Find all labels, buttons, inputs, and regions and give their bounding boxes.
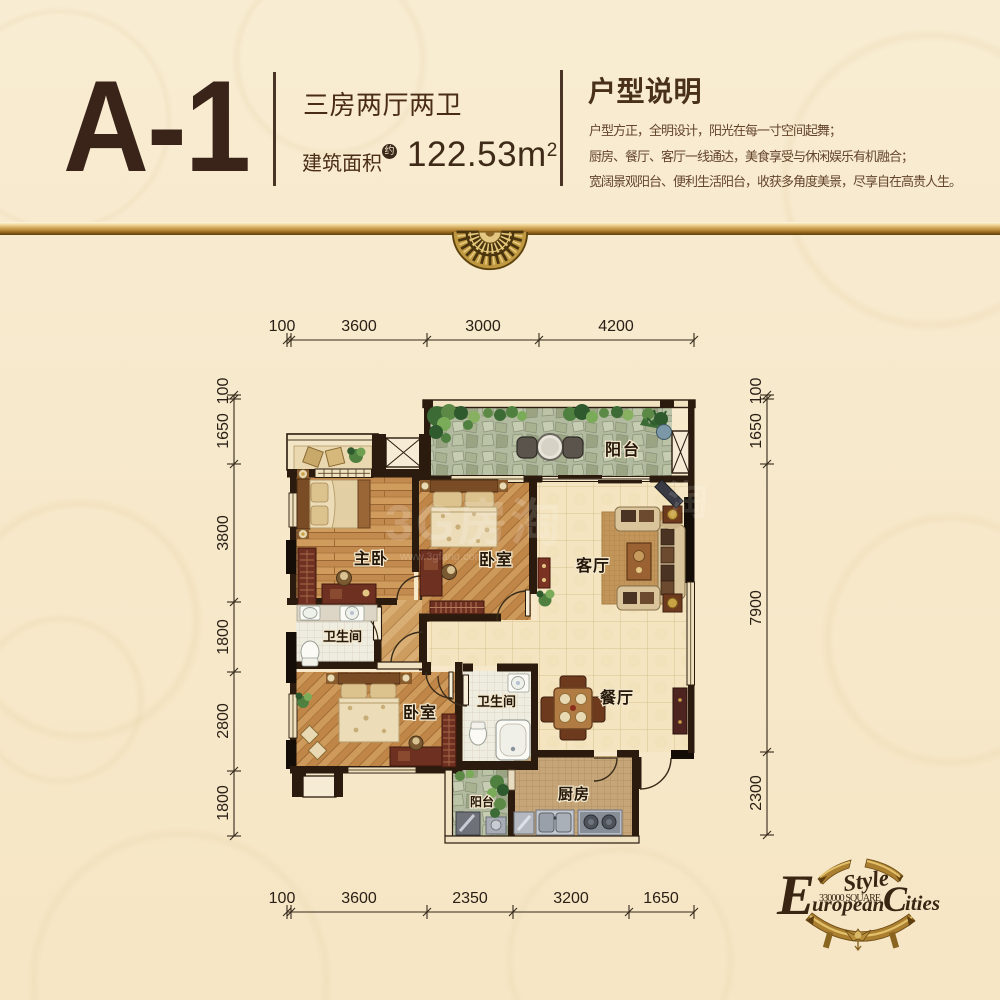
svg-text:卫生间: 卫生间 <box>323 629 362 644</box>
svg-text:4200: 4200 <box>598 318 634 335</box>
svg-text:3G房淘: 3G房淘 <box>385 495 564 551</box>
svg-text:3600: 3600 <box>341 890 377 907</box>
svg-text:100: 100 <box>748 378 765 405</box>
svg-text:100: 100 <box>215 378 232 405</box>
svg-text:卧室: 卧室 <box>479 550 513 569</box>
svg-text:阳台: 阳台 <box>605 440 641 459</box>
svg-text:1650: 1650 <box>215 413 232 449</box>
svg-text:厨房: 厨房 <box>558 785 590 803</box>
svg-text:3200: 3200 <box>553 890 589 907</box>
svg-text:3000: 3000 <box>465 318 501 335</box>
svg-text:阳台: 阳台 <box>470 794 494 809</box>
svg-text:www.3gfang.com: www.3gfang.com <box>399 551 484 563</box>
svg-text:1650: 1650 <box>748 413 765 449</box>
svg-text:1800: 1800 <box>215 619 232 655</box>
svg-text:7900: 7900 <box>748 590 765 626</box>
svg-text:3600: 3600 <box>341 318 377 335</box>
svg-text:330000 SQUARE: 330000 SQUARE <box>819 893 881 904</box>
svg-text:3800: 3800 <box>215 515 232 551</box>
svg-text:ities: ities <box>905 891 940 915</box>
svg-text:100: 100 <box>269 318 296 335</box>
svg-text:卧室: 卧室 <box>403 703 437 722</box>
svg-text:2800: 2800 <box>215 703 232 739</box>
svg-text:主卧: 主卧 <box>354 549 388 568</box>
svg-text:E: E <box>776 864 815 927</box>
svg-text:2350: 2350 <box>452 890 488 907</box>
svg-text:餐厅: 餐厅 <box>599 688 634 707</box>
svg-text:客厅: 客厅 <box>576 556 610 575</box>
svg-text:卫生间: 卫生间 <box>477 694 516 709</box>
svg-text:2300: 2300 <box>748 775 765 811</box>
svg-text:1650: 1650 <box>643 890 679 907</box>
svg-text:100: 100 <box>269 890 296 907</box>
svg-text:淘: 淘 <box>668 479 708 523</box>
svg-text:1800: 1800 <box>215 785 232 821</box>
